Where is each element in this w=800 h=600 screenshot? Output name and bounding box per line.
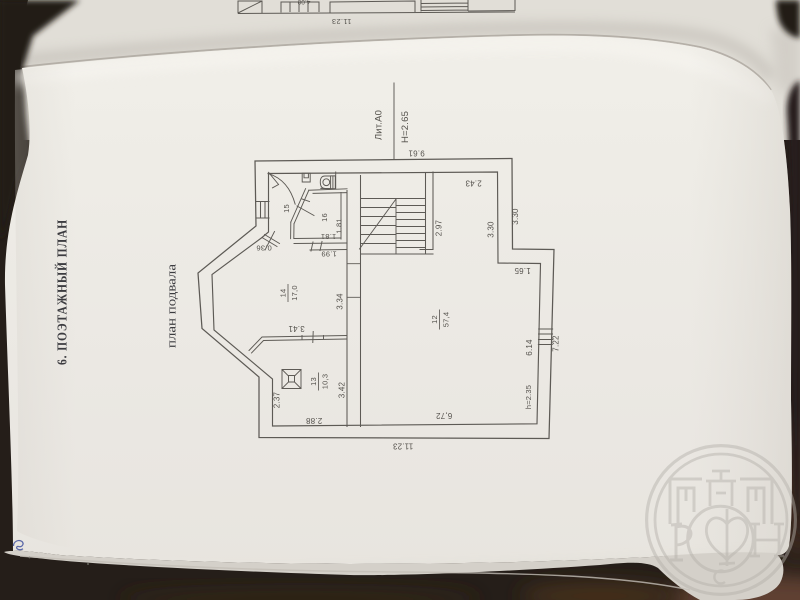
svg-text:2.43: 2.43 [465,179,482,188]
svg-text:6,72: 6,72 [435,411,452,420]
svg-text:17,0: 17,0 [290,285,299,300]
svg-text:3.41: 3.41 [288,324,305,333]
svg-text:h=2.35: h=2.35 [524,385,533,409]
svg-text:1.99: 1.99 [321,249,336,258]
svg-text:1.81: 1.81 [335,218,344,233]
svg-text:2.97: 2.97 [434,219,443,236]
svg-text:16: 16 [320,213,329,222]
svg-text:Лит.А0: Лит.А0 [373,110,384,140]
svg-text:0.36: 0.36 [256,243,271,252]
svg-text:12: 12 [430,315,439,324]
svg-text:11.23: 11.23 [332,17,352,26]
svg-text:2.37: 2.37 [272,391,281,408]
svg-text:7.22: 7.22 [551,335,560,352]
svg-text:3.30: 3.30 [486,221,495,238]
svg-text:3.30: 3.30 [511,208,520,225]
svg-text:10,3: 10,3 [321,374,330,389]
svg-text:Н=2.65: Н=2.65 [400,111,411,143]
svg-text:6. ПОЭТАЖНЫЙ ПЛАН: 6. ПОЭТАЖНЫЙ ПЛАН [55,219,70,365]
svg-text:3.34: 3.34 [335,293,344,310]
svg-text:15: 15 [282,204,291,213]
svg-text:6.14: 6.14 [525,339,534,356]
svg-text:57,4: 57,4 [442,312,451,327]
svg-text:1.65: 1.65 [514,266,531,275]
svg-text:14: 14 [279,289,288,298]
svg-text:2.88: 2.88 [305,416,322,425]
svg-text:план подвала: план подвала [164,263,178,348]
svg-text:9.61: 9.61 [408,149,425,158]
svg-text:3.42: 3.42 [337,381,346,398]
svg-text:4.00: 4.00 [297,0,310,5]
svg-text:13: 13 [309,377,318,386]
svg-text:1.81: 1.81 [321,232,336,241]
svg-text:11.23: 11.23 [392,442,413,451]
